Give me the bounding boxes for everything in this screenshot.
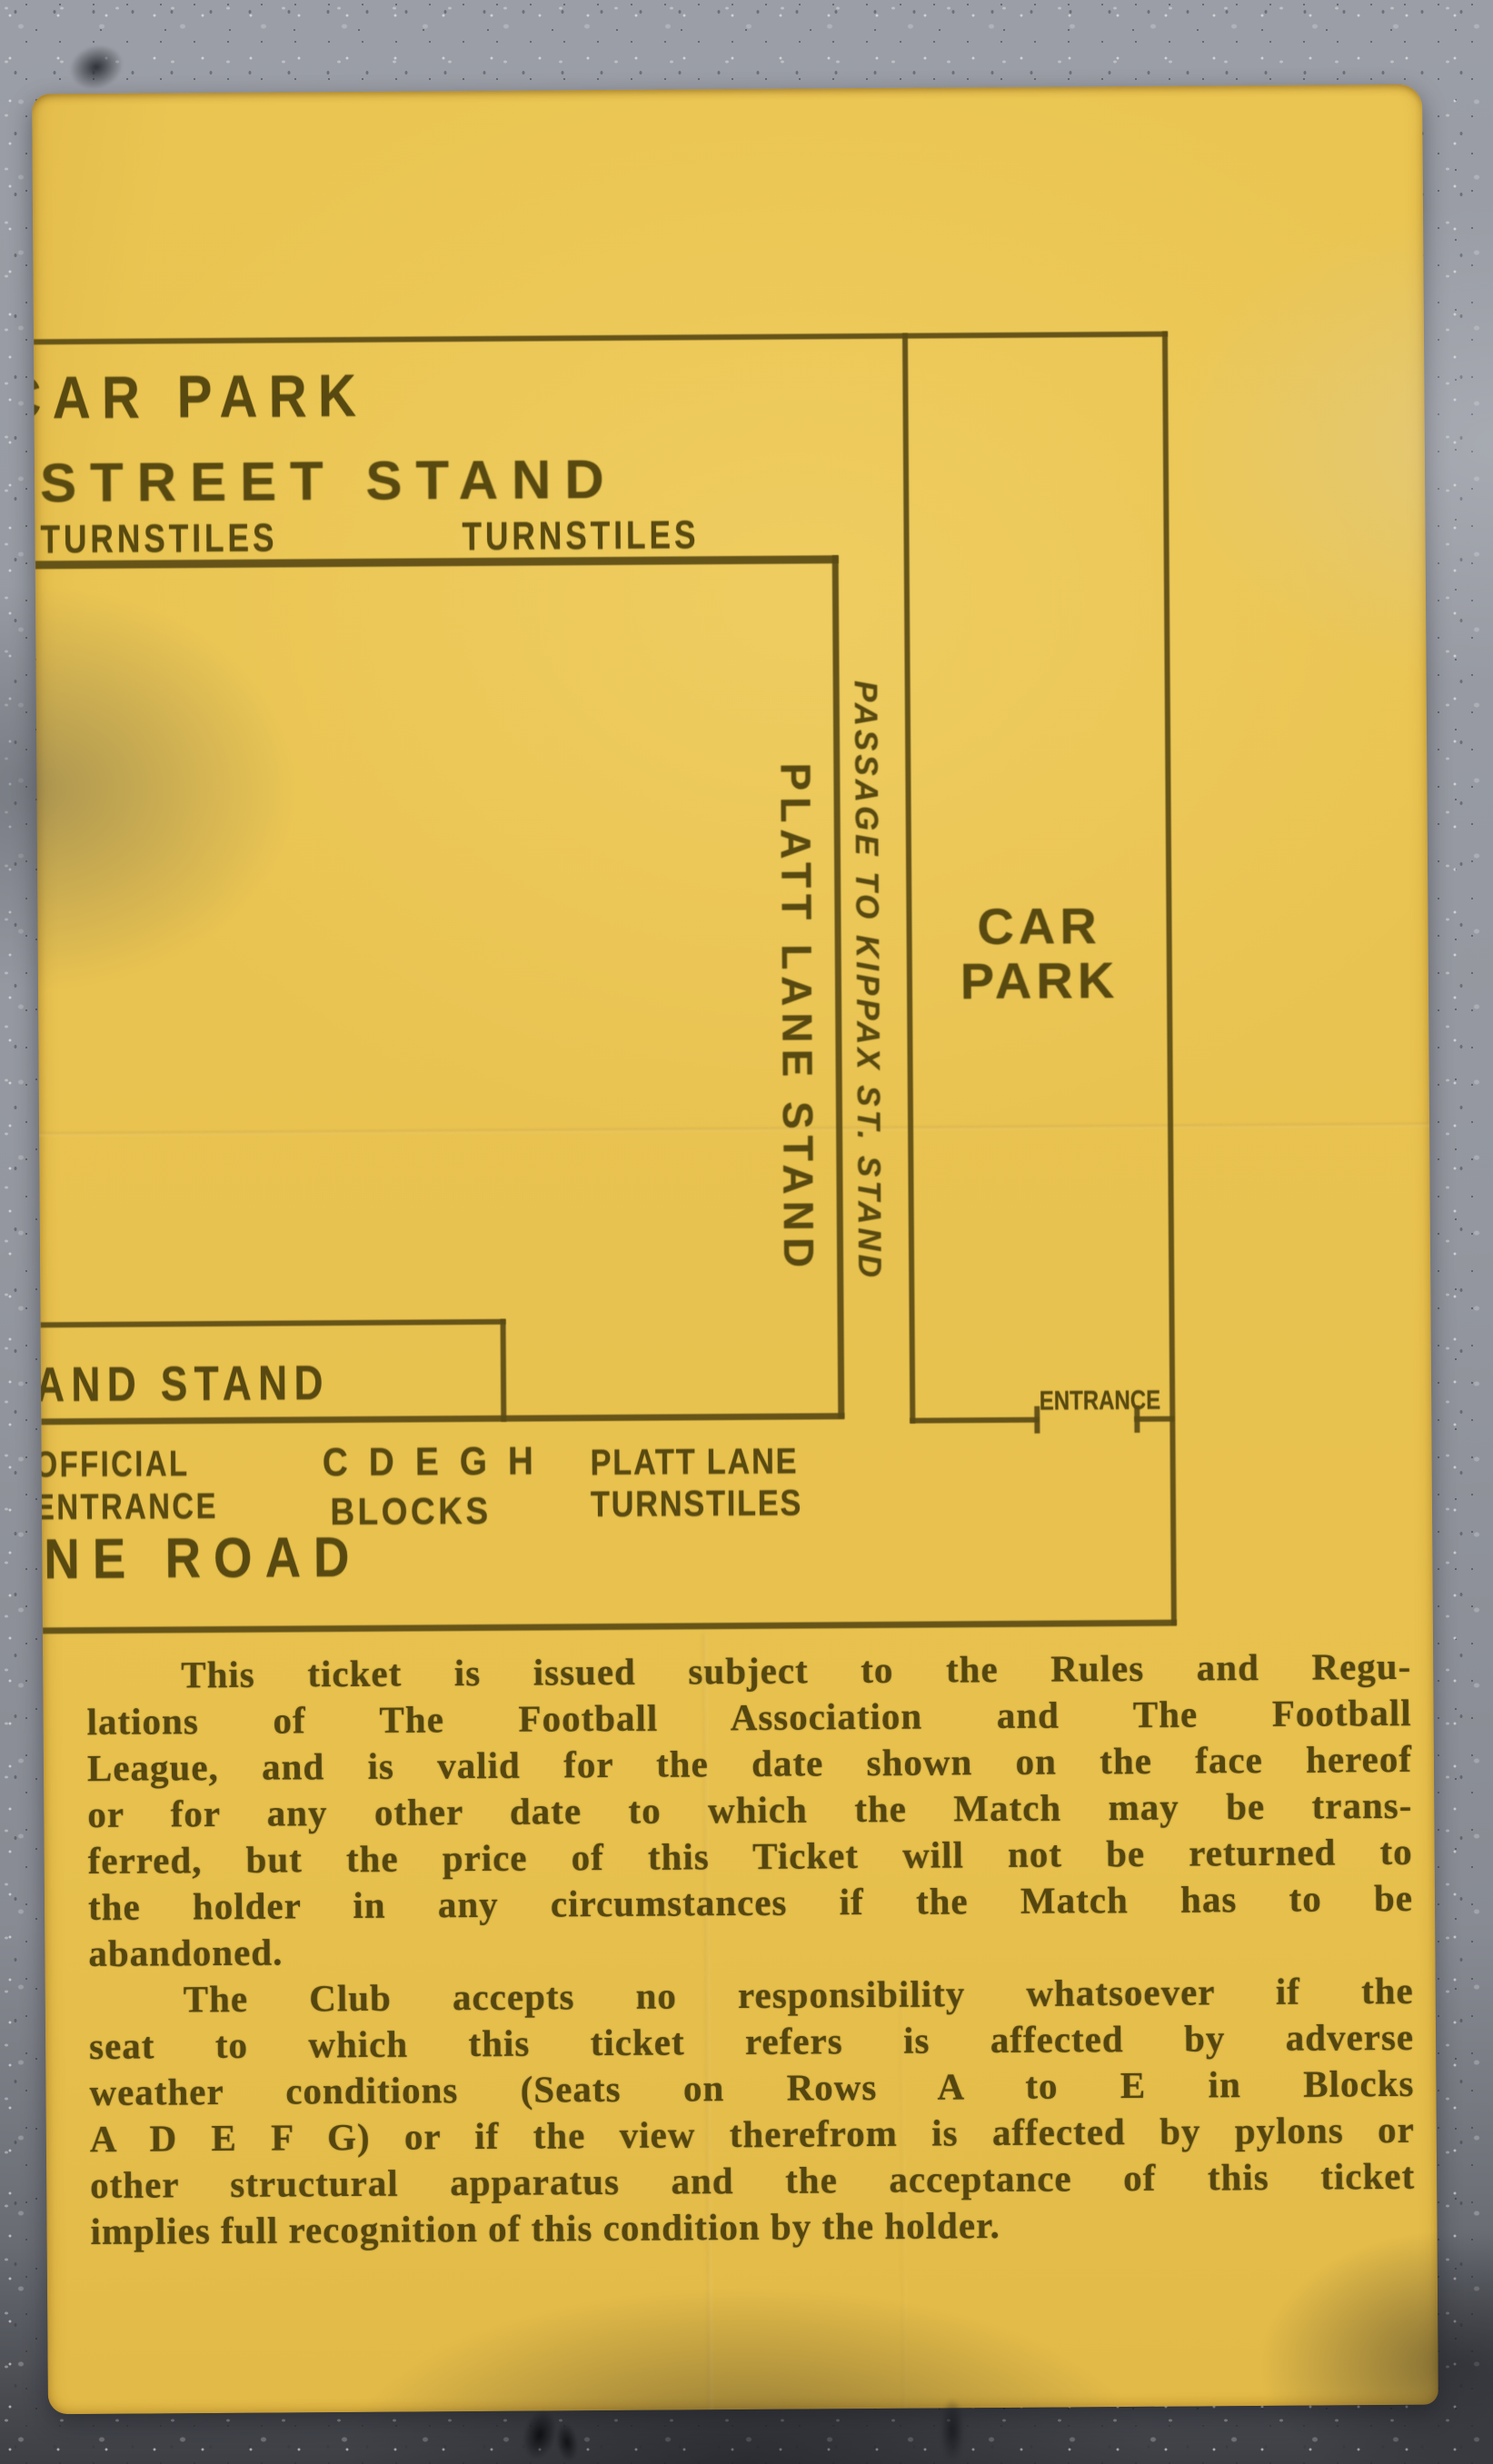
stone-blotch-bottom-2	[552, 2420, 581, 2463]
platt-lane-stand-label: PLATT LANE STAND	[771, 762, 823, 1274]
fold-crease-horizontal	[39, 1123, 1429, 1137]
platt-lane-turnstiles-line1: PLATT LANE	[590, 1441, 768, 1484]
carpark-bottom-right-segment	[1134, 1416, 1174, 1422]
terms-line: implies full recognition of this conditi…	[90, 2200, 1415, 2255]
official-entrance-line2: ENTRANCE	[35, 1485, 218, 1529]
pitch-right-line	[832, 555, 845, 1418]
stone-blotch-bottom-1	[518, 2406, 562, 2463]
carpark-bottom-left-segment	[910, 1417, 1039, 1424]
photo-background: CAR PARK STREET STAND TURNSTILES TURNSTI…	[0, 0, 1493, 2464]
platt-lane-turnstiles-line2: TURNSTILES	[591, 1483, 769, 1525]
pitch-bottom-line	[41, 1413, 844, 1425]
stand-box-top-line	[41, 1319, 506, 1328]
road-label: NE ROAD	[44, 1525, 363, 1592]
platt-lane-turnstiles-label: PLATT LANE TURNSTILES	[590, 1441, 769, 1525]
stone-blotch-bottom-3	[941, 2399, 964, 2462]
car-park-top-label: CAR PARK	[32, 361, 367, 432]
stone-smudge-top-left	[64, 38, 129, 96]
official-entrance-line1: OFFICIAL	[34, 1443, 217, 1486]
passage-to-kippax-label: PASSAGE TO KIPPAX ST. STAND	[847, 681, 888, 1281]
turnstiles-left-label: TURNSTILES	[40, 515, 277, 562]
turnstiles-right-label: TURNSTILES	[462, 512, 699, 560]
official-entrance-label: OFFICIAL ENTRANCE	[34, 1443, 218, 1529]
street-stand-label: STREET STAND	[40, 448, 618, 514]
terms-and-conditions: This ticket is issued subject to the Rul…	[86, 1644, 1416, 2255]
map-outer-top-line	[34, 332, 1168, 345]
blocks-label: C D E G H BLOCKS	[323, 1437, 499, 1536]
car-park-right-line2: PARK	[912, 953, 1167, 1009]
terms-line: the holder in any circumstances if the M…	[88, 1875, 1413, 1931]
terms-line: other structural apparatus and the accep…	[90, 2153, 1415, 2209]
map-outer-bottom-line	[43, 1620, 1177, 1634]
ticket: CAR PARK STREET STAND TURNSTILES TURNSTI…	[32, 84, 1438, 2415]
carpark-divider-line	[902, 333, 915, 1424]
blocks-line1: C D E G H	[323, 1437, 499, 1487]
entrance-label: ENTRANCE	[1040, 1386, 1131, 1417]
stand-box-right-line	[501, 1319, 507, 1422]
car-park-right-label: CAR PARK	[911, 899, 1167, 1009]
car-park-right-line1: CAR	[911, 899, 1166, 955]
stand-box-label: AND STAND	[35, 1355, 330, 1413]
